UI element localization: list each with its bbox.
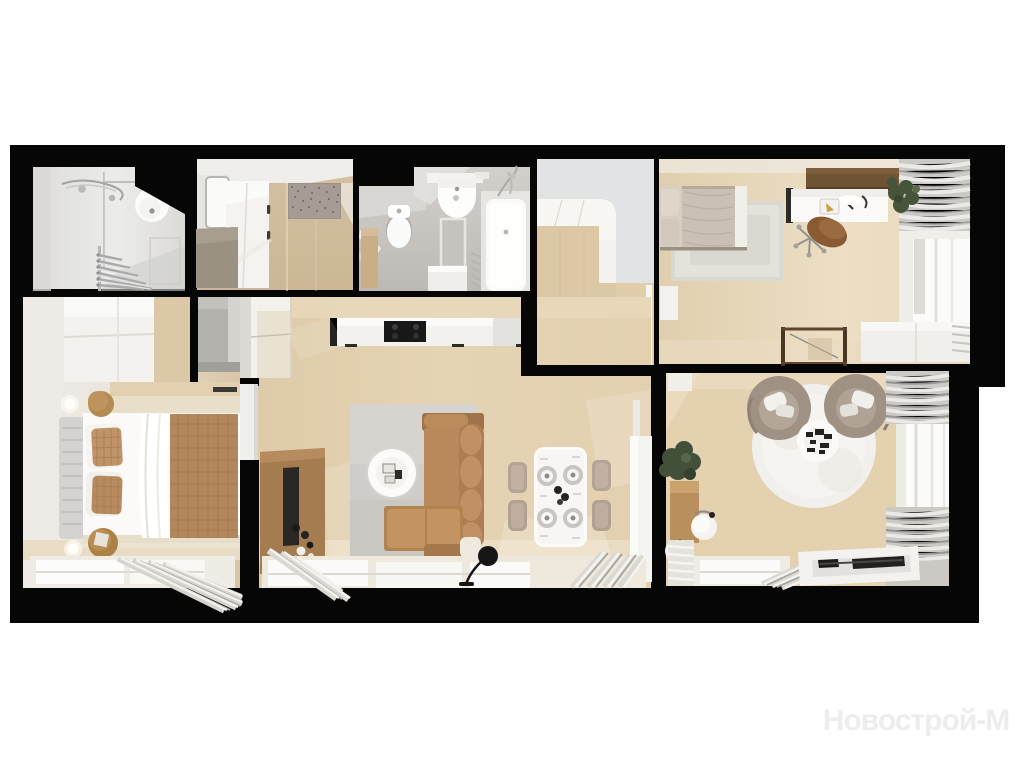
svg-text:Новострой-М: Новострой-М [823, 704, 1009, 737]
